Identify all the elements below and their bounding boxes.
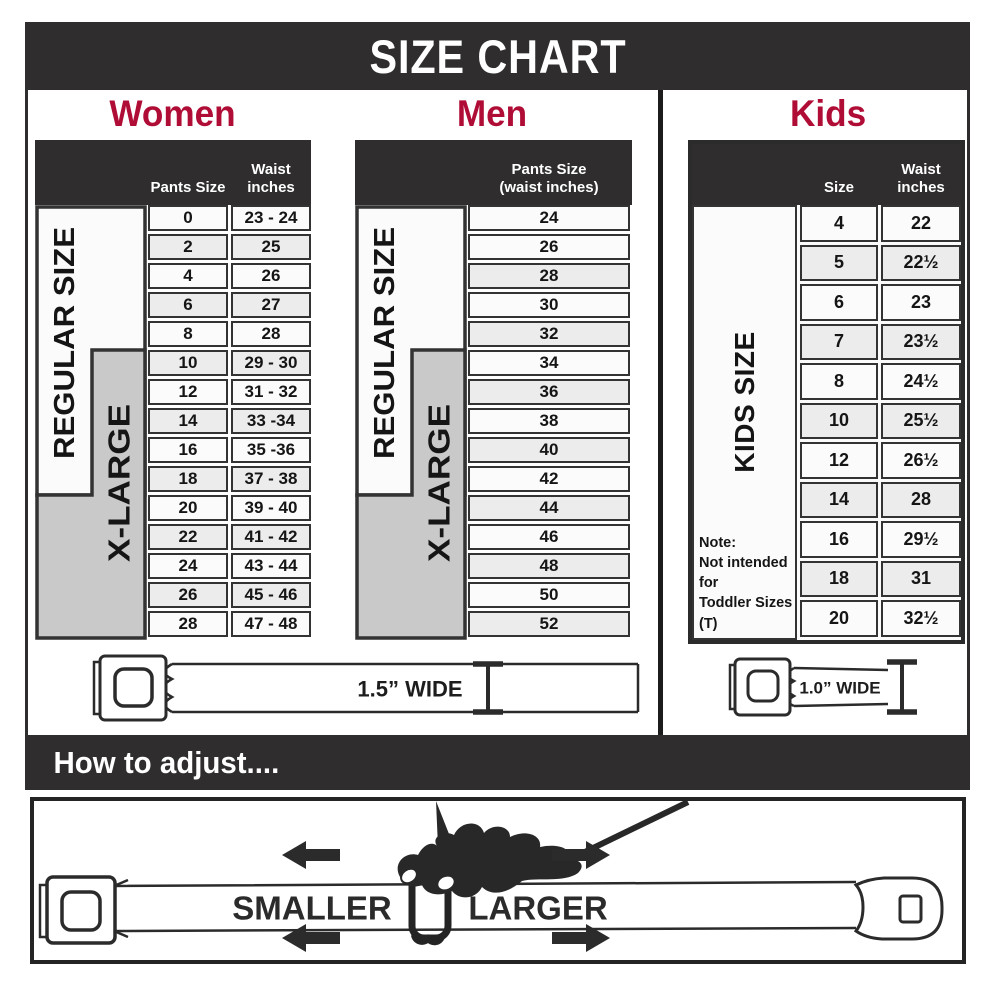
size-cell: 20 xyxy=(148,495,228,521)
size-cell: 48 xyxy=(468,553,630,579)
size-cell: 2 xyxy=(148,234,228,260)
waist-cell: 28 xyxy=(881,482,961,519)
men-pants-size-header: Pants Size (waist inches) xyxy=(468,161,630,199)
size-cell: 26 xyxy=(148,582,228,608)
size-cell: 8 xyxy=(800,363,878,400)
size-cell: 28 xyxy=(148,611,228,637)
size-cell: 16 xyxy=(800,521,878,558)
title-band: SIZE CHART xyxy=(25,22,970,90)
men-size-category-graphic: REGULAR SIZE X-LARGE xyxy=(355,205,467,640)
buckle-release-button xyxy=(62,892,100,930)
size-cell: 46 xyxy=(468,524,630,550)
kids-size-label-box: KIDS SIZE Note: Not intended for Toddler… xyxy=(692,205,797,640)
size-cell: 16 xyxy=(148,437,228,463)
women-pants-size-header: Pants Size xyxy=(148,179,228,198)
waist-cell: 24½ xyxy=(881,363,961,400)
size-cell: 50 xyxy=(468,582,630,608)
belt-tip-slot xyxy=(900,896,921,922)
women-rows: 023 - 242254266278281029 - 301231 - 3214… xyxy=(148,205,311,637)
page-title: SIZE CHART xyxy=(369,29,626,84)
waist-cell: 23 xyxy=(881,284,961,321)
size-cell: 24 xyxy=(468,205,630,231)
kids-size-table: Size Waist inches KIDS SIZE Note: Not in… xyxy=(688,140,965,644)
larger-label: LARGER xyxy=(468,890,608,927)
waist-cell: 28 xyxy=(231,321,311,347)
waist-cell: 35 -36 xyxy=(231,437,311,463)
size-cell: 44 xyxy=(468,495,630,521)
waist-cell: 25 xyxy=(231,234,311,260)
width-measure-mark xyxy=(887,662,917,712)
size-cell: 42 xyxy=(468,466,630,492)
size-cell: 30 xyxy=(468,292,630,318)
kids-waist-header: Waist inches xyxy=(881,161,961,199)
buckle-release-button xyxy=(115,669,152,706)
men-regular-size-label: REGULAR SIZE xyxy=(369,227,401,459)
size-cell: 18 xyxy=(148,466,228,492)
women-table-header: Pants Size Waist inches xyxy=(35,140,311,205)
adjust-illustration: SMALLER LARGER xyxy=(34,801,962,960)
size-cell: 10 xyxy=(800,403,878,440)
size-cell: 20 xyxy=(800,600,878,637)
waist-cell: 47 - 48 xyxy=(231,611,311,637)
size-chart-page: SIZE CHART Women Men Kids Pants Size Wai… xyxy=(0,0,1000,1000)
kids-section-title: Kids xyxy=(713,93,943,135)
size-cell: 24 xyxy=(148,553,228,579)
kids-table-header: Size Waist inches xyxy=(692,144,961,205)
size-cell: 4 xyxy=(800,205,878,242)
size-cell: 34 xyxy=(468,350,630,376)
width-measure-mark xyxy=(473,664,503,712)
size-cell: 40 xyxy=(468,437,630,463)
waist-cell: 22½ xyxy=(881,245,961,282)
size-cell: 6 xyxy=(800,284,878,321)
waist-cell: 31 xyxy=(881,561,961,598)
waist-cell: 32½ xyxy=(881,600,961,637)
adjust-heading: How to adjust.... xyxy=(25,745,279,781)
women-size-table: Pants Size Waist inches REGULAR SIZE X-L… xyxy=(35,140,311,640)
waist-cell: 26 xyxy=(231,263,311,289)
waist-cell: 37 - 38 xyxy=(231,466,311,492)
waist-cell: 39 - 40 xyxy=(231,495,311,521)
size-cell: 12 xyxy=(800,442,878,479)
size-cell: 4 xyxy=(148,263,228,289)
women-xlarge-label: X-LARGE xyxy=(102,404,137,562)
size-cell: 14 xyxy=(148,408,228,434)
size-cell: 22 xyxy=(148,524,228,550)
waist-cell: 41 - 42 xyxy=(231,524,311,550)
women-waist-header: Waist inches xyxy=(231,161,311,199)
men-size-table: Pants Size (waist inches) REGULAR SIZE X… xyxy=(355,140,632,640)
men-xlarge-label: X-LARGE xyxy=(422,404,457,562)
smaller-label: SMALLER xyxy=(232,890,392,927)
men-table-header: Pants Size (waist inches) xyxy=(355,140,632,205)
size-cell: 10 xyxy=(148,350,228,376)
size-cell: 38 xyxy=(468,408,630,434)
size-cell: 8 xyxy=(148,321,228,347)
size-cell: 7 xyxy=(800,324,878,361)
size-cell: 14 xyxy=(800,482,878,519)
women-size-category-graphic: REGULAR SIZE X-LARGE xyxy=(35,205,147,640)
smaller-arrow-top xyxy=(282,841,340,869)
waist-cell: 23 - 24 xyxy=(231,205,311,231)
kids-size-header: Size xyxy=(800,179,878,198)
waist-cell: 29 - 30 xyxy=(231,350,311,376)
kids-size-label: KIDS SIZE xyxy=(729,331,761,472)
waist-cell: 33 -34 xyxy=(231,408,311,434)
adjust-section-header: How to adjust.... xyxy=(25,735,970,790)
waist-cell: 23½ xyxy=(881,324,961,361)
kids-rows: 422522½623723½824½1025½1226½14281629½183… xyxy=(800,205,961,637)
kids-belt-graphic: 1.0” WIDE xyxy=(728,650,938,724)
waist-cell: 31 - 32 xyxy=(231,379,311,405)
size-cell: 28 xyxy=(468,263,630,289)
size-cell: 36 xyxy=(468,379,630,405)
waist-cell: 45 - 46 xyxy=(231,582,311,608)
adjust-illustration-box: SMALLER LARGER xyxy=(30,797,966,964)
size-cell: 18 xyxy=(800,561,878,598)
women-regular-size-label: REGULAR SIZE xyxy=(49,227,81,459)
vertical-divider xyxy=(658,90,663,735)
waist-cell: 26½ xyxy=(881,442,961,479)
men-rows: 242628303234363840424446485052 xyxy=(468,205,630,637)
size-cell: 6 xyxy=(148,292,228,318)
size-cell: 26 xyxy=(468,234,630,260)
women-section-title: Women xyxy=(57,93,287,135)
adult-belt-width-label: 1.5” WIDE xyxy=(357,677,462,702)
buckle-release-button xyxy=(748,671,778,701)
men-section-title: Men xyxy=(377,93,607,135)
size-cell: 12 xyxy=(148,379,228,405)
smaller-arrow-bottom xyxy=(282,924,340,952)
adult-belt-graphic: 1.5” WIDE xyxy=(90,648,645,728)
size-cell: 52 xyxy=(468,611,630,637)
size-cell: 5 xyxy=(800,245,878,282)
waist-cell: 27 xyxy=(231,292,311,318)
waist-cell: 25½ xyxy=(881,403,961,440)
waist-cell: 22 xyxy=(881,205,961,242)
waist-cell: 43 - 44 xyxy=(231,553,311,579)
kids-belt-width-label: 1.0” WIDE xyxy=(799,679,880,698)
waist-cell: 29½ xyxy=(881,521,961,558)
kids-note: Note: Not intended for Toddler Sizes (T) xyxy=(699,533,795,634)
size-cell: 0 xyxy=(148,205,228,231)
size-cell: 32 xyxy=(468,321,630,347)
